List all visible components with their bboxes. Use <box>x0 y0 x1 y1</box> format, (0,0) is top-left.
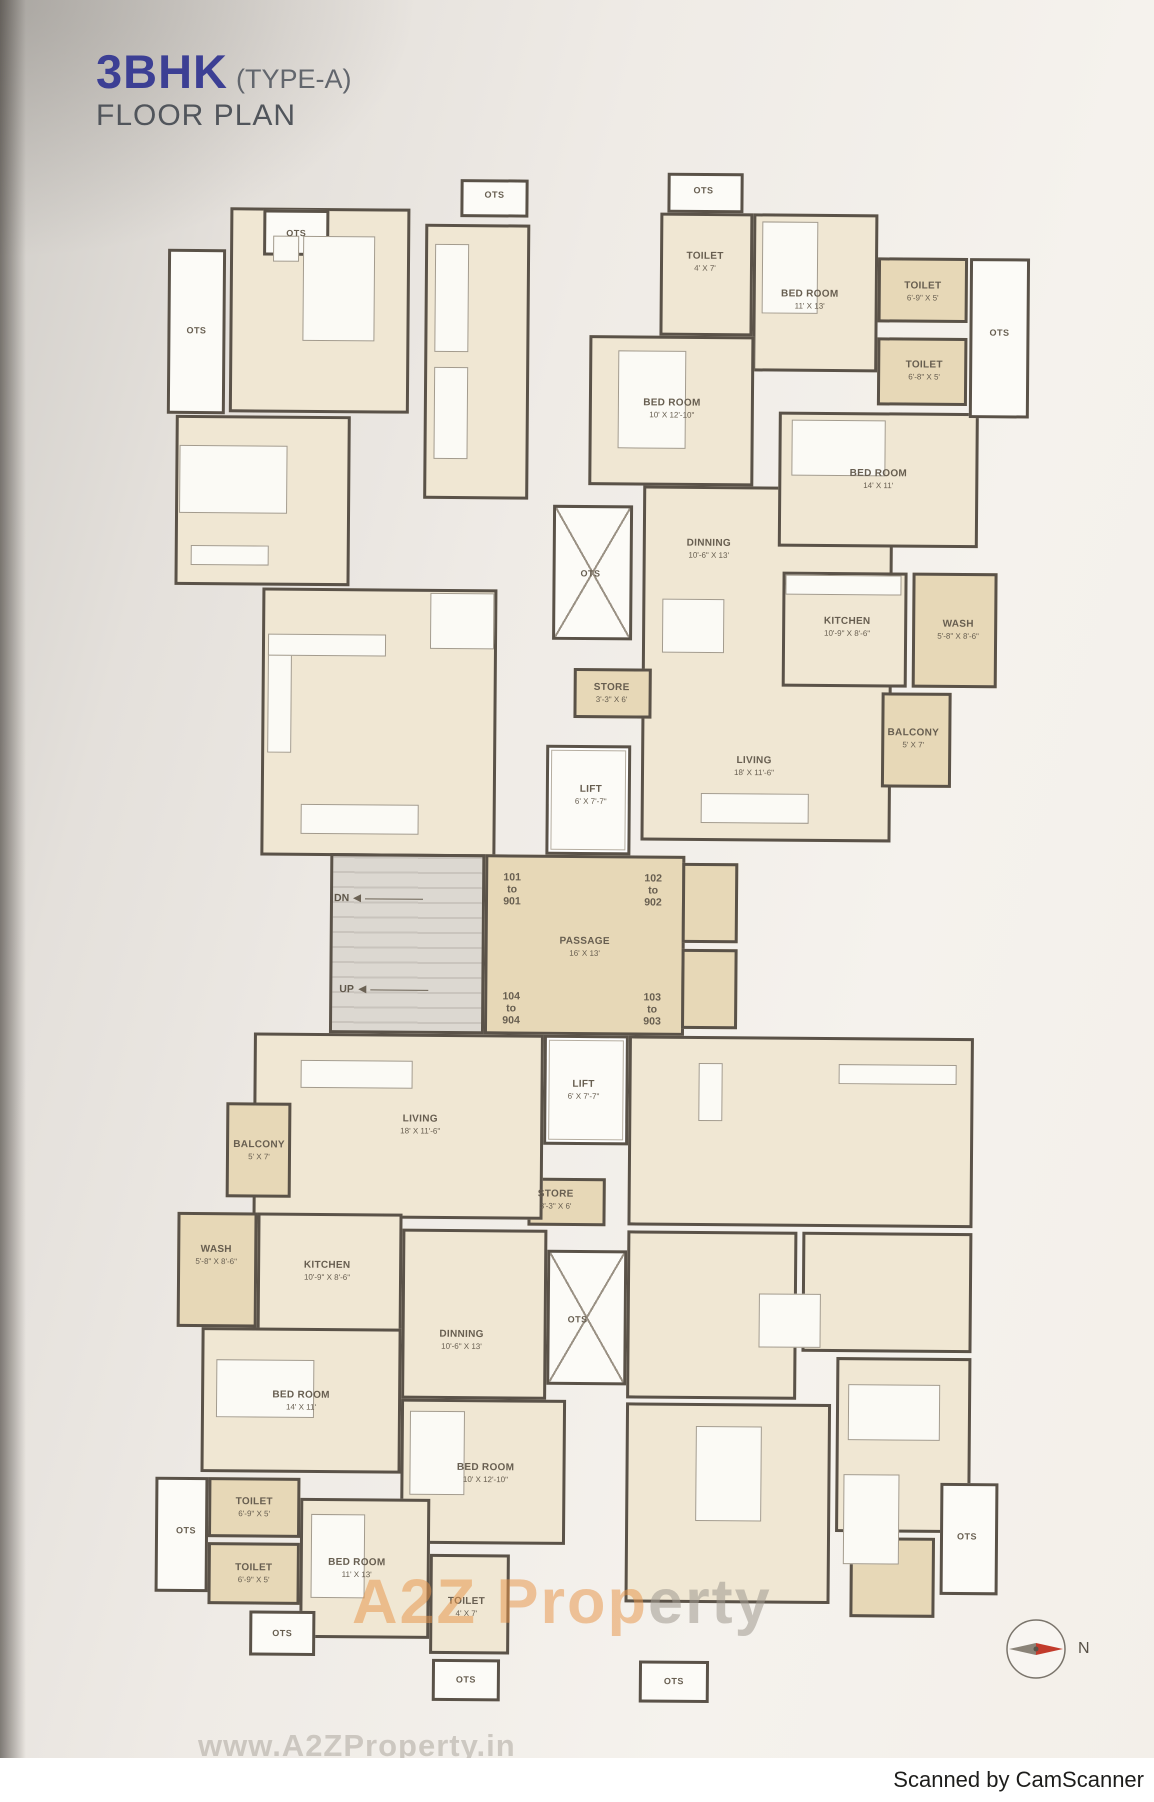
room-label: WASH5'-8" X 8'-6" <box>937 619 979 642</box>
label-line: LIFT <box>568 1079 600 1092</box>
stair-direction-text: UP <box>339 983 354 995</box>
label-line: 10' X 12'-10" <box>643 410 700 420</box>
ots-label: OTS <box>694 185 714 196</box>
arrow-line <box>370 989 428 990</box>
ots-label: OTS <box>456 1674 476 1685</box>
label-line: 10'-6" X 13' <box>687 550 731 560</box>
service-block <box>681 949 738 1029</box>
label-line: 103 <box>643 991 661 1003</box>
furniture <box>434 244 469 352</box>
room-label: TOILET6'-9" X 5' <box>904 280 941 303</box>
furniture <box>662 599 724 653</box>
room-label: TOILET6'-9" X 5' <box>236 1496 273 1519</box>
label-line: 903 <box>643 1016 661 1028</box>
ots-label: OTS <box>186 325 206 336</box>
room-label: LIFT6' X 7'-7" <box>568 1079 600 1102</box>
furniture <box>758 1293 820 1347</box>
furniture <box>701 793 809 824</box>
label-line: 4' X 7' <box>686 263 723 273</box>
ots-label: OTS <box>568 1314 588 1325</box>
camscanner-bar: Scanned by CamScanner <box>0 1758 1154 1802</box>
label-line: OTS <box>694 185 714 196</box>
furniture <box>698 1063 722 1121</box>
room-label: DINNING10'-6" X 13' <box>439 1329 484 1352</box>
furniture <box>843 1474 900 1564</box>
room-label: KITCHEN10'-9" X 8'-6" <box>824 616 871 639</box>
furniture <box>302 236 375 342</box>
room-label: LIVING18' X 11'-6" <box>400 1113 440 1136</box>
label-line: 6'-9" X 5' <box>235 1575 272 1585</box>
label-line: STORE <box>594 682 630 695</box>
label-line: KITCHEN <box>824 616 871 629</box>
room-label: STORE3'-3" X 6' <box>538 1188 574 1211</box>
label-line: 18' X 11'-6" <box>734 767 774 777</box>
label-line: to <box>643 1003 661 1015</box>
room-label: TOILET6'-8" X 5' <box>906 359 943 382</box>
furniture <box>695 1426 762 1522</box>
label-line: OTS <box>989 328 1009 339</box>
compass-icon <box>1000 1614 1072 1684</box>
label-line: BED ROOM <box>457 1462 515 1475</box>
label-line: 10'-9" X 8'-6" <box>824 628 871 638</box>
label-line: 10' X 12'-10" <box>457 1474 514 1484</box>
label-line: BALCONY <box>233 1139 285 1152</box>
arrow-line <box>365 898 423 899</box>
service-block <box>682 863 739 943</box>
furniture <box>301 804 419 835</box>
label-line: 18' X 11'-6" <box>400 1126 440 1136</box>
label-line: 5' X 7' <box>887 740 939 750</box>
room-label: LIFT6' X 7'-7" <box>575 784 607 807</box>
label-line: LIFT <box>575 784 607 797</box>
label-line: WASH <box>937 619 979 632</box>
furniture <box>433 367 468 459</box>
label-line: OTS <box>272 1628 292 1639</box>
label-line: OTS <box>456 1674 476 1685</box>
label-line: DINNING <box>439 1329 483 1342</box>
stair-direction-text: DN <box>334 892 349 904</box>
room-label: KITCHEN10'-9" X 8'-6" <box>304 1260 351 1283</box>
room-label: DINNING10'-6" X 13' <box>687 538 732 561</box>
scanned-by-text: Scanned by CamScanner <box>893 1767 1144 1793</box>
ots-label: OTS <box>176 1525 196 1536</box>
label-line: 6'-8" X 5' <box>906 372 943 382</box>
compass: N <box>1000 1614 1090 1684</box>
furniture <box>301 1060 413 1089</box>
label-line: 14' X 11' <box>850 480 907 490</box>
watermark-part2: erty <box>648 1567 772 1637</box>
label-line: STORE <box>538 1188 574 1201</box>
unit-range-label: 104to904 <box>502 990 520 1026</box>
ots-label: OTS <box>286 228 306 239</box>
floor-plan: OTSOTSOTSOTSTOILET4' X 7'BED ROOM11' X 1… <box>0 0 1154 1802</box>
ots-label: OTS <box>581 568 601 579</box>
label-line: 5'-8" X 8'-6" <box>195 1256 237 1266</box>
label-line: OTS <box>176 1525 196 1536</box>
room-label: BED ROOM14' X 11' <box>272 1389 330 1412</box>
watermark-part1: A2Z Prop <box>352 1567 648 1637</box>
label-line: 901 <box>503 895 521 907</box>
label-line: 902 <box>644 897 662 909</box>
room-label: STORE3'-3" X 6' <box>594 682 630 705</box>
furniture <box>785 575 901 596</box>
label-line: OTS <box>484 190 504 201</box>
arrow-left-icon <box>353 894 361 902</box>
room-label: TOILET4' X 7' <box>686 251 723 274</box>
label-line: 6'-9" X 5' <box>904 293 941 303</box>
ots-label: OTS <box>989 328 1009 339</box>
label-line: BED ROOM <box>781 288 839 301</box>
label-line: 16' X 13' <box>559 948 609 958</box>
label-line: 3'-3" X 6' <box>538 1201 574 1211</box>
label-line: OTS <box>581 568 601 579</box>
room-label: BED ROOM10' X 12'-10" <box>457 1462 515 1485</box>
watermark: A2Z Property <box>352 1566 772 1638</box>
unit-range-label: 101to901 <box>503 871 521 907</box>
label-line: 5'-8" X 8'-6" <box>937 631 979 641</box>
stair-direction: DN <box>334 892 423 905</box>
arrow-left-icon <box>358 985 366 993</box>
label-line: 6'-9" X 5' <box>236 1509 273 1519</box>
furniture <box>430 593 494 650</box>
label-line: DINNING <box>687 538 731 551</box>
label-line: to <box>502 1002 520 1014</box>
label-line: 6' X 7'-7" <box>568 1091 600 1101</box>
room-label: BED ROOM14' X 11' <box>850 468 908 491</box>
label-line: WASH <box>195 1244 237 1257</box>
stair-direction: UP <box>339 983 428 996</box>
label-line: BED ROOM <box>850 468 908 481</box>
label-line: 10'-6" X 13' <box>439 1341 483 1351</box>
ots-label: OTS <box>957 1531 977 1542</box>
label-line: 10'-9" X 8'-6" <box>304 1272 351 1282</box>
label-line: LIVING <box>734 755 774 768</box>
scanned-page: 3BHK(TYPE-A) FLOOR PLAN OTSOTSOTSOTSTOIL… <box>0 0 1154 1802</box>
label-line: 904 <box>502 1014 520 1026</box>
room-label: BALCONY5' X 7' <box>233 1139 285 1162</box>
label-line: TOILET <box>235 1562 272 1575</box>
label-line: to <box>503 883 521 895</box>
room-label: LIVING18' X 11'-6" <box>734 755 774 778</box>
label-line: TOILET <box>686 251 723 264</box>
label-line: 102 <box>644 872 662 884</box>
label-line: TOILET <box>906 359 943 372</box>
label-line: 101 <box>503 871 521 883</box>
label-line: PASSAGE <box>559 936 609 949</box>
label-line: 5' X 7' <box>233 1152 285 1162</box>
unit-range-label: 103to903 <box>643 991 661 1027</box>
label-line: KITCHEN <box>304 1260 351 1273</box>
service-block <box>177 1212 258 1328</box>
ots-label: OTS <box>484 190 504 201</box>
room-block <box>801 1232 972 1353</box>
ots-label: OTS <box>664 1676 684 1687</box>
north-label: N <box>1078 1640 1090 1658</box>
room-label: TOILET6'-9" X 5' <box>235 1562 272 1585</box>
room-label: WASH5'-8" X 8'-6" <box>195 1244 237 1267</box>
label-line: LIVING <box>400 1113 440 1126</box>
furniture <box>273 236 299 262</box>
room-label: BED ROOM10' X 12'-10" <box>643 397 701 420</box>
unit-range-label: 102to902 <box>644 872 662 908</box>
room-label: BED ROOM11' X 13' <box>781 288 839 311</box>
furniture <box>848 1384 940 1441</box>
label-line: BED ROOM <box>272 1389 330 1402</box>
room-label: BALCONY5' X 7' <box>887 727 939 750</box>
furniture <box>268 634 386 657</box>
stairs-block <box>329 853 485 1034</box>
furniture <box>839 1064 957 1085</box>
label-line: OTS <box>568 1314 588 1325</box>
label-line: to <box>644 884 662 896</box>
label-line: OTS <box>286 228 306 239</box>
label-line: TOILET <box>904 280 941 293</box>
label-line: TOILET <box>236 1496 273 1509</box>
label-line: 104 <box>502 990 520 1002</box>
room-label: PASSAGE16' X 13' <box>559 936 609 959</box>
ots-label: OTS <box>272 1628 292 1639</box>
label-line: 14' X 11' <box>272 1402 329 1412</box>
label-line: BALCONY <box>888 727 940 740</box>
label-line: 11' X 13' <box>781 301 838 311</box>
furniture <box>191 545 269 566</box>
furniture <box>179 445 288 514</box>
label-line: 3'-3" X 6' <box>594 694 630 704</box>
room-block <box>659 213 753 337</box>
label-line: 6' X 7'-7" <box>575 796 607 806</box>
label-line: OTS <box>186 325 206 336</box>
label-line: OTS <box>957 1531 977 1542</box>
label-line: OTS <box>664 1676 684 1687</box>
room-block <box>401 1229 547 1400</box>
label-line: BED ROOM <box>643 397 701 410</box>
